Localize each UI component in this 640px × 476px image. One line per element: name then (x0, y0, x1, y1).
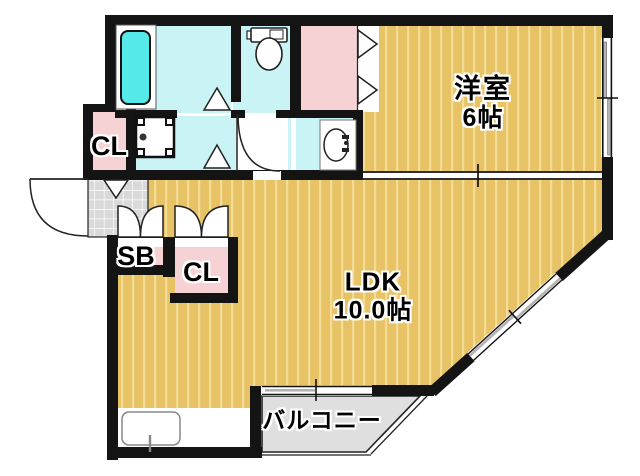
wall-washbasin-top (288, 110, 363, 118)
room-floors (88, 24, 602, 447)
window-sash (608, 99, 611, 155)
washbasin (320, 120, 356, 170)
wall-bottom (107, 447, 262, 458)
entrance-door-arc (30, 179, 88, 236)
ldk-name: LDK (345, 266, 401, 296)
wall-top (105, 15, 613, 26)
wall-ldk-bottom-right (372, 385, 434, 396)
wall-washblock-bottom (83, 170, 363, 180)
wall-left-upper (105, 15, 116, 112)
doorway-gap-cl (175, 238, 228, 247)
washer-corner (166, 149, 173, 156)
washbasin-bowl (324, 129, 348, 161)
floorplan-canvas: 洋室 6帖 LDK 10.0帖 バルコニー CL SB CL (0, 0, 640, 476)
balcony-label: バルコニー (262, 408, 382, 434)
western-room-closet-floor (301, 24, 357, 112)
wall-sb-cl-mid (163, 237, 175, 277)
bathtub-icon (121, 31, 150, 104)
wall-balcony-left (250, 386, 261, 458)
washbasin-faucet (342, 148, 349, 152)
toilet-bowl (256, 38, 282, 70)
wall-right-below-window (602, 155, 613, 240)
washing-machine-pan (136, 117, 174, 157)
western-room-label: 洋室 6帖 (454, 74, 512, 132)
washbasin-knob (344, 141, 348, 145)
washer-corner (166, 118, 173, 125)
balcony-door-sash (265, 389, 315, 392)
wall-closet-upper-right (126, 104, 136, 172)
ldk-label: LDK 10.0帖 (334, 267, 413, 324)
wall-toilet-closet (290, 15, 301, 114)
window-sash (604, 42, 607, 98)
washer-drain (140, 134, 147, 141)
doorway-gap-hall-ldk (253, 171, 281, 180)
wall-cl-bottom (170, 293, 238, 303)
closet-lower-label: CL (183, 257, 219, 287)
shoe-box-label: SB (117, 241, 155, 271)
ldk-size: 10.0帖 (334, 297, 413, 325)
closet-upper-label: CL (91, 131, 127, 161)
western-room-name: 洋室 (454, 74, 512, 104)
washer-corner (137, 118, 144, 125)
washbasin-faucet (342, 135, 349, 139)
wall-right-above-window (602, 15, 613, 40)
bathtub (116, 25, 156, 109)
western-room-size: 6帖 (454, 104, 512, 132)
washer-corner (137, 149, 144, 156)
floorplan-drawing (0, 0, 640, 476)
hall-doorway-area (236, 113, 288, 172)
wall-bath-toilet (231, 15, 241, 102)
